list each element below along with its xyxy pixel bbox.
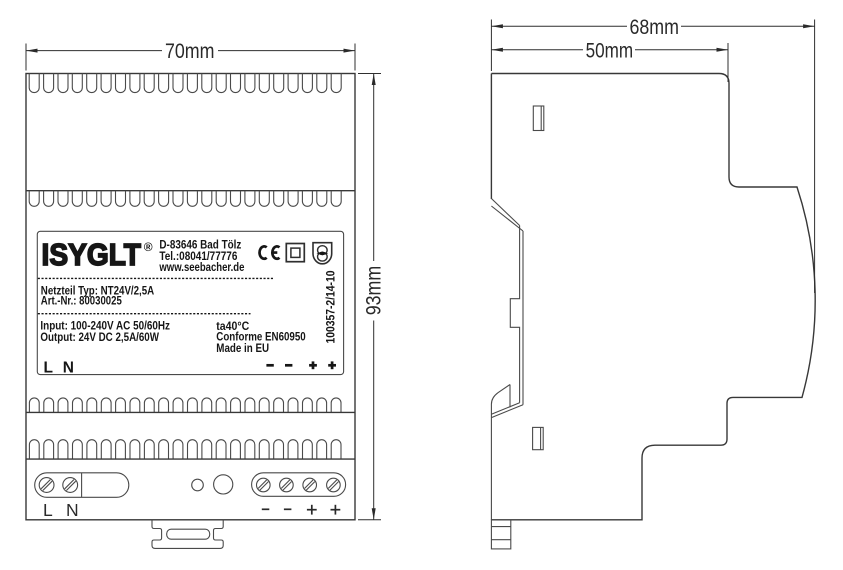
svg-text:L: L [44, 359, 53, 376]
svg-text:L: L [43, 500, 53, 520]
svg-text:ISYGLT: ISYGLT [42, 237, 142, 272]
svg-text:70mm: 70mm [165, 40, 215, 63]
svg-text:www.seebacher.de: www.seebacher.de [159, 260, 245, 274]
svg-text:100357-2/14-10: 100357-2/14-10 [324, 270, 338, 343]
svg-text:Art.-Nr.: 80030025: Art.-Nr.: 80030025 [41, 294, 122, 308]
svg-text:68mm: 68mm [630, 16, 680, 39]
svg-text:Output: 24V DC 2,5A/60W: Output: 24V DC 2,5A/60W [40, 330, 159, 344]
svg-text:Made in EU: Made in EU [216, 341, 269, 355]
svg-text:®: ® [144, 240, 153, 254]
svg-text:93mm: 93mm [363, 266, 386, 316]
svg-text:N: N [66, 500, 79, 520]
svg-text:N: N [63, 359, 74, 376]
svg-text:50mm: 50mm [586, 39, 634, 62]
